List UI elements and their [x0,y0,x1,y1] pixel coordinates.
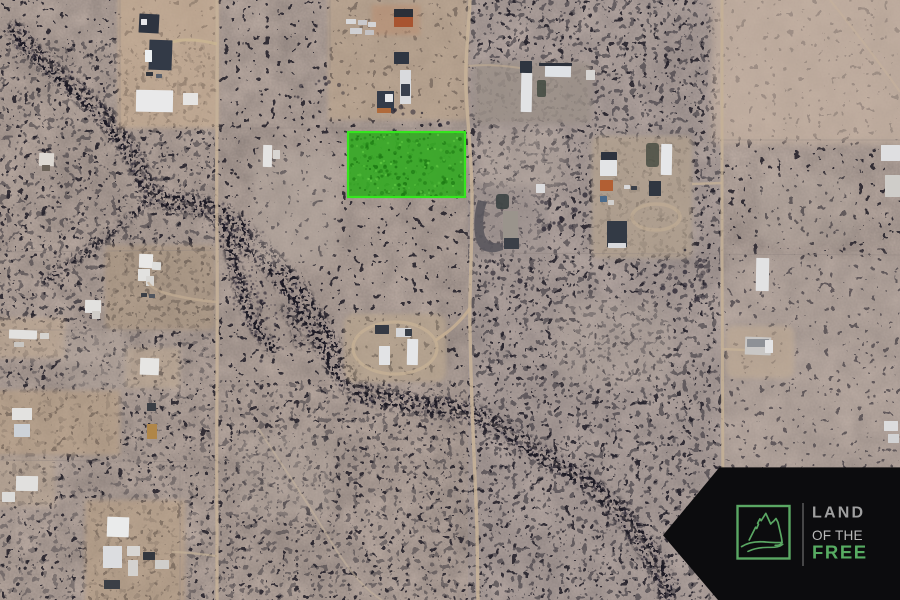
svg-text:FREE: FREE [812,542,868,563]
svg-text:OF THE: OF THE [812,528,863,543]
svg-text:LAND: LAND [812,505,865,522]
